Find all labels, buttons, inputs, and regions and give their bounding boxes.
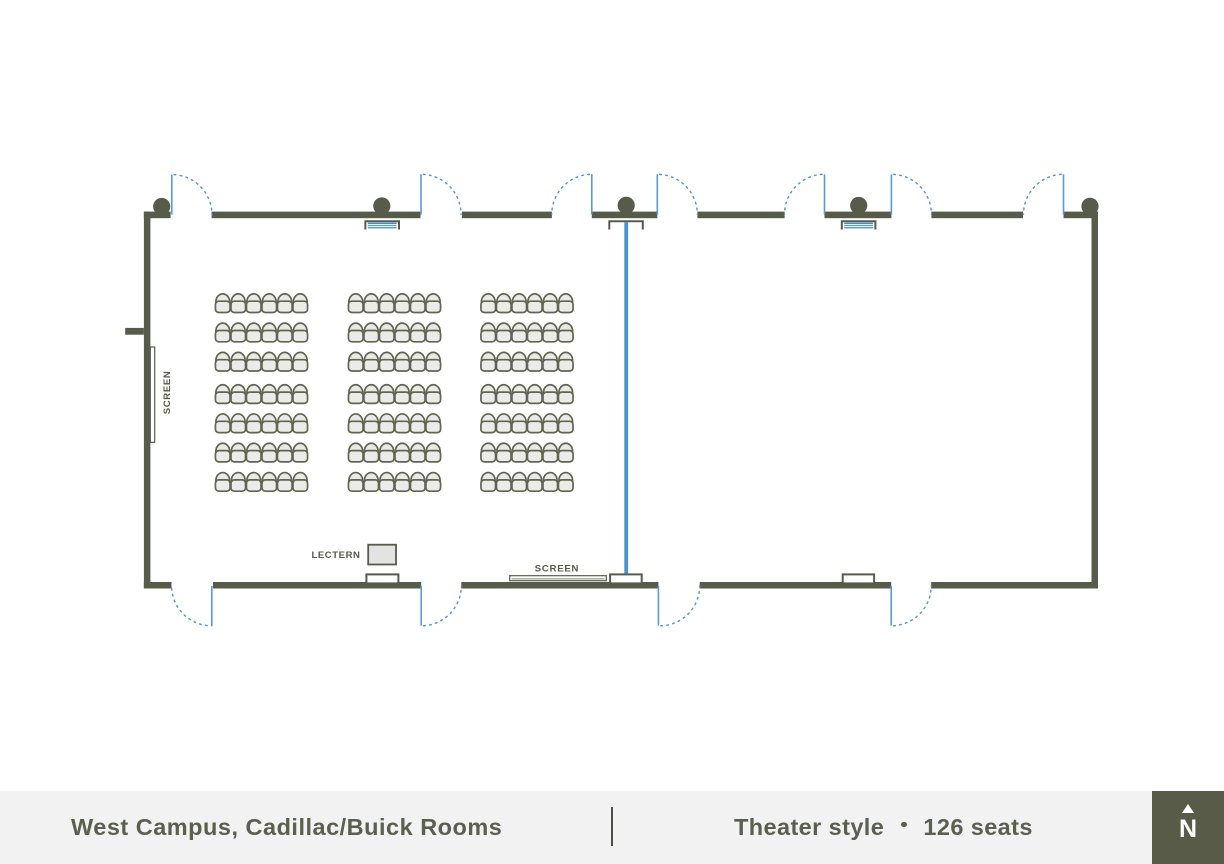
svg-text:SCREEN: SCREEN — [162, 371, 173, 415]
svg-text:LECTERN: LECTERN — [311, 550, 360, 561]
svg-text:SCREEN: SCREEN — [535, 563, 579, 574]
